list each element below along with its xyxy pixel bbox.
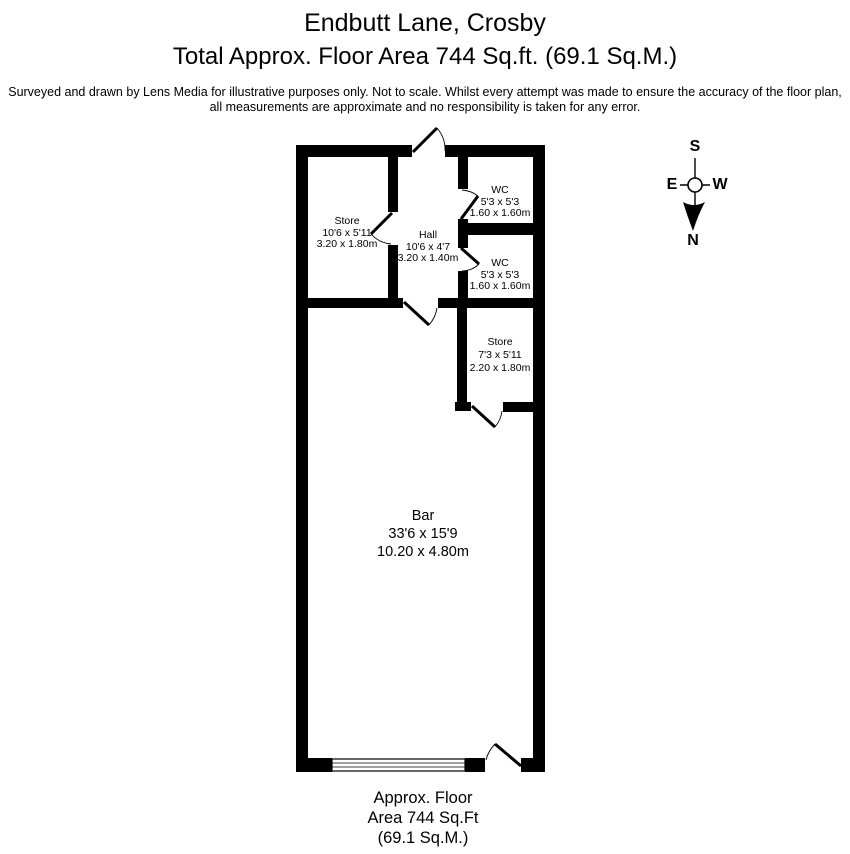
- wall-mid-right: [438, 298, 545, 308]
- compass-east-label: E: [667, 176, 678, 194]
- wall-bottom-left-corner: [296, 758, 332, 772]
- footer-line-1: Approx. Floor: [368, 788, 479, 808]
- wall-store2-stub: [455, 402, 471, 411]
- wall-store1-divider-top: [388, 157, 398, 212]
- door-swing: [429, 308, 437, 325]
- floorplan-page: Endbutt Lane, Crosby Total Approx. Floor…: [0, 0, 850, 854]
- door-leaf: [413, 128, 437, 152]
- wall-wc-divider-top: [458, 157, 468, 189]
- wall-store2-left: [457, 308, 467, 404]
- wall-left: [296, 145, 308, 772]
- footer-caption: Approx. Floor Area 744 Sq.Ft (69.1 Sq.M.…: [368, 788, 479, 848]
- room-label-store-2: Store 7'3 x 5'11 2.20 x 1.80m: [470, 336, 531, 375]
- door-swing: [495, 411, 502, 427]
- wall-top-right: [445, 145, 545, 157]
- compass-icon: [680, 158, 710, 231]
- footer-line-2: Area 744 Sq.Ft: [368, 808, 479, 828]
- window: [332, 759, 465, 771]
- wall-wc-divider-bottom: [458, 271, 468, 298]
- room-label-wc-2: WC 5'3 x 5'3 1.60 x 1.60m: [470, 258, 531, 293]
- wall-wc-horizontal: [458, 223, 545, 235]
- wall-mid-left: [296, 298, 403, 308]
- room-name: Store: [470, 336, 531, 349]
- room-dims-metric: 1.60 x 1.60m: [470, 281, 531, 293]
- wall-bottom-mid: [465, 758, 485, 772]
- room-dims-imperial: 33'6 x 15'9: [377, 525, 469, 543]
- door-swing: [486, 744, 495, 760]
- room-dims-metric: 10.20 x 4.80m: [377, 543, 469, 561]
- room-label-store-1: Store 10'6 x 5'11 3.20 x 1.80m: [317, 216, 378, 251]
- room-dims-metric: 3.20 x 1.40m: [398, 253, 459, 265]
- compass-north-label: N: [687, 232, 699, 250]
- wall-top-left: [296, 145, 412, 157]
- door-swing: [437, 128, 445, 151]
- door-top-entrance: [413, 128, 445, 152]
- compass-south-label: S: [690, 138, 701, 156]
- compass-west-label: W: [712, 176, 727, 194]
- wall-right: [533, 145, 545, 758]
- room-dims-imperial: 7'3 x 5'11: [470, 349, 531, 362]
- door-leaf: [472, 406, 495, 427]
- wall-store2-bottom: [503, 402, 533, 412]
- floorplan-drawing: [0, 0, 850, 854]
- room-name: WC: [470, 258, 531, 270]
- room-label-hall: Hall 10'6 x 4'7 3.20 x 1.40m: [398, 230, 459, 265]
- door-leaf: [495, 744, 521, 766]
- door-leaf: [404, 302, 429, 325]
- footer-line-3: (69.1 Sq.M.): [368, 828, 479, 848]
- room-name: WC: [470, 185, 531, 197]
- room-name: Store: [317, 216, 378, 228]
- room-dims-metric: 3.20 x 1.80m: [317, 239, 378, 251]
- room-label-wc-1: WC 5'3 x 5'3 1.60 x 1.60m: [470, 185, 531, 220]
- door-store2: [472, 406, 502, 427]
- door-hall-to-bar: [404, 302, 437, 325]
- room-name: Bar: [377, 507, 469, 525]
- room-dims-metric: 2.20 x 1.80m: [470, 362, 531, 375]
- room-name: Hall: [398, 230, 459, 242]
- wall-store1-divider-bottom: [388, 245, 398, 298]
- compass-north-arrow: [683, 202, 705, 231]
- room-label-bar: Bar 33'6 x 15'9 10.20 x 4.80m: [377, 507, 469, 561]
- door-bottom-entrance: [486, 744, 521, 766]
- wall-bottom-right-corner: [521, 758, 545, 772]
- room-dims-metric: 1.60 x 1.60m: [470, 208, 531, 220]
